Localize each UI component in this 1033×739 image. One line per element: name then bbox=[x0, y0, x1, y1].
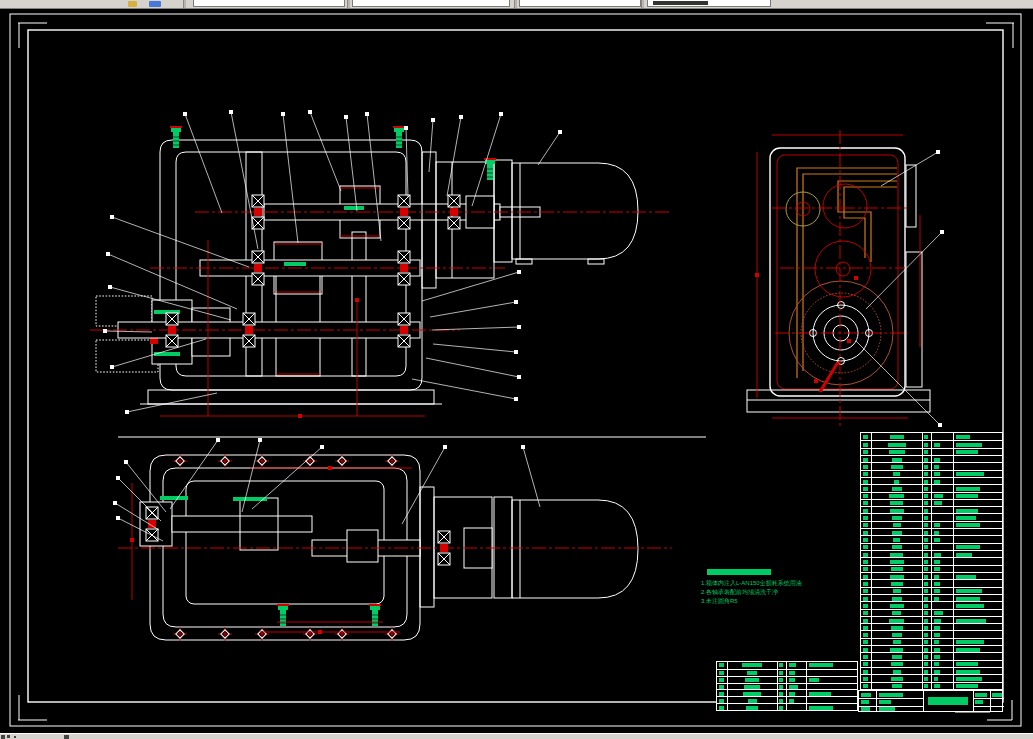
layer-dropdown[interactable] bbox=[193, 0, 345, 7]
parts-list-table-continued bbox=[716, 661, 858, 711]
plan-view bbox=[118, 437, 706, 641]
table-row bbox=[717, 703, 857, 711]
front-section-view bbox=[90, 126, 672, 418]
table-row bbox=[861, 433, 1002, 440]
oil-pipes bbox=[797, 168, 897, 378]
parts-list-table bbox=[860, 432, 1003, 690]
toolbar-icon-1[interactable] bbox=[128, 1, 137, 7]
linetype-dropdown[interactable] bbox=[519, 0, 641, 7]
toolbar-icon-2[interactable] bbox=[149, 1, 161, 7]
note-line: 1.箱体内注入L-AN150全损耗系统用油 bbox=[701, 580, 831, 586]
lineweight-dropdown[interactable] bbox=[647, 0, 771, 7]
status-bar bbox=[0, 733, 1033, 739]
technical-notes: 1.箱体内注入L-AN150全损耗系统用油 2.各轴承装配前均须清洗干净 3.未… bbox=[701, 569, 831, 607]
gear-circles bbox=[786, 184, 893, 385]
toolbar-separator bbox=[514, 0, 517, 8]
notes-heading-bar bbox=[707, 569, 771, 575]
toolbar-separator bbox=[641, 0, 644, 8]
cad-toolbar bbox=[0, 0, 1033, 9]
motor-plan bbox=[420, 487, 638, 607]
note-line: 2.各轴承装配前均须清洗干净 bbox=[701, 589, 831, 595]
toolbar-separator bbox=[347, 0, 350, 8]
note-line: 3.未注圆角R5 bbox=[701, 598, 831, 604]
side-view bbox=[747, 130, 930, 428]
table-row bbox=[861, 682, 1002, 690]
toolbar-separator bbox=[183, 0, 186, 8]
color-dropdown[interactable] bbox=[352, 0, 510, 7]
title-block bbox=[858, 690, 1003, 712]
table-row bbox=[717, 662, 857, 669]
